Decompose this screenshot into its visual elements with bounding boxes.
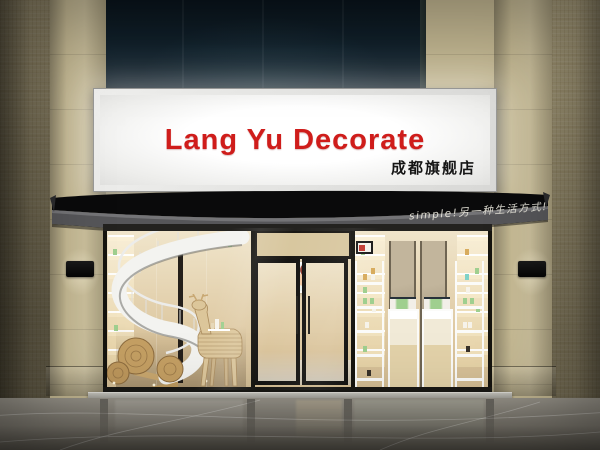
product-item: [371, 274, 375, 280]
product-item: [463, 298, 467, 304]
display-cabinet: [388, 309, 419, 392]
sign-subtitle: 成都旗舰店: [391, 157, 476, 178]
right-wall-lamp-icon: [518, 261, 546, 277]
mullion-reflection: [100, 399, 108, 445]
signboard: Lang Yu Decorate 成都旗舰店: [93, 88, 497, 192]
mullion-reflection: [486, 399, 494, 445]
product-item: [468, 322, 472, 328]
deer-display-stand: [188, 294, 248, 390]
window-frame-right: [488, 224, 492, 394]
door-light-reflection: [296, 400, 342, 440]
product-item: [363, 346, 367, 352]
product-item: [367, 370, 371, 376]
upper-glass-panel: [104, 0, 426, 96]
mullion-reflection: [247, 399, 255, 445]
deer-back-products: [208, 319, 230, 331]
left-wall-lamp-icon: [66, 261, 94, 277]
screen-graphic: [359, 245, 365, 251]
product-item: [463, 322, 467, 328]
left-wall-shading: [0, 0, 50, 398]
right-wall-shading: [552, 0, 600, 398]
left-outer-wall: [0, 0, 50, 398]
mullion-reflection: [344, 399, 352, 445]
storefront: [103, 224, 492, 394]
sign-title: Lang Yu Decorate: [165, 124, 425, 157]
right-window-reflection: [354, 400, 484, 440]
left-door-leaf: [254, 259, 300, 385]
product-item: [465, 274, 469, 280]
display-cabinet: [422, 309, 453, 392]
product-item: [470, 298, 474, 304]
window-frame-left: [103, 224, 107, 394]
storefront-scene: Lang Yu Decorate 成都旗舰店 simple!另一种生活方式!: [0, 0, 600, 450]
door-handle: [296, 296, 298, 334]
sign-lightbox: Lang Yu Decorate 成都旗舰店: [100, 95, 490, 185]
upper-right-tile: [426, 0, 496, 96]
product-item: [363, 274, 367, 280]
product-item: [370, 298, 374, 304]
left-window-reflection: [115, 400, 243, 440]
cabinet-top-products: [390, 297, 416, 309]
window-frame-top: [103, 224, 492, 231]
cabinet-top-products: [424, 297, 450, 309]
right-outer-wall: [552, 0, 600, 398]
product-item: [365, 322, 369, 328]
product-item: [363, 298, 367, 304]
right-display-window: [353, 231, 489, 388]
ladder-shelf-left: [355, 261, 384, 392]
product-item: [466, 346, 470, 352]
window-mullion: [251, 224, 255, 394]
door-transom-panel: [253, 229, 353, 259]
wall-screen: [356, 241, 373, 254]
door-handle: [308, 296, 310, 334]
ladder-shelf-right: [455, 261, 484, 392]
product-item: [465, 249, 469, 255]
window-mullion: [351, 224, 355, 394]
